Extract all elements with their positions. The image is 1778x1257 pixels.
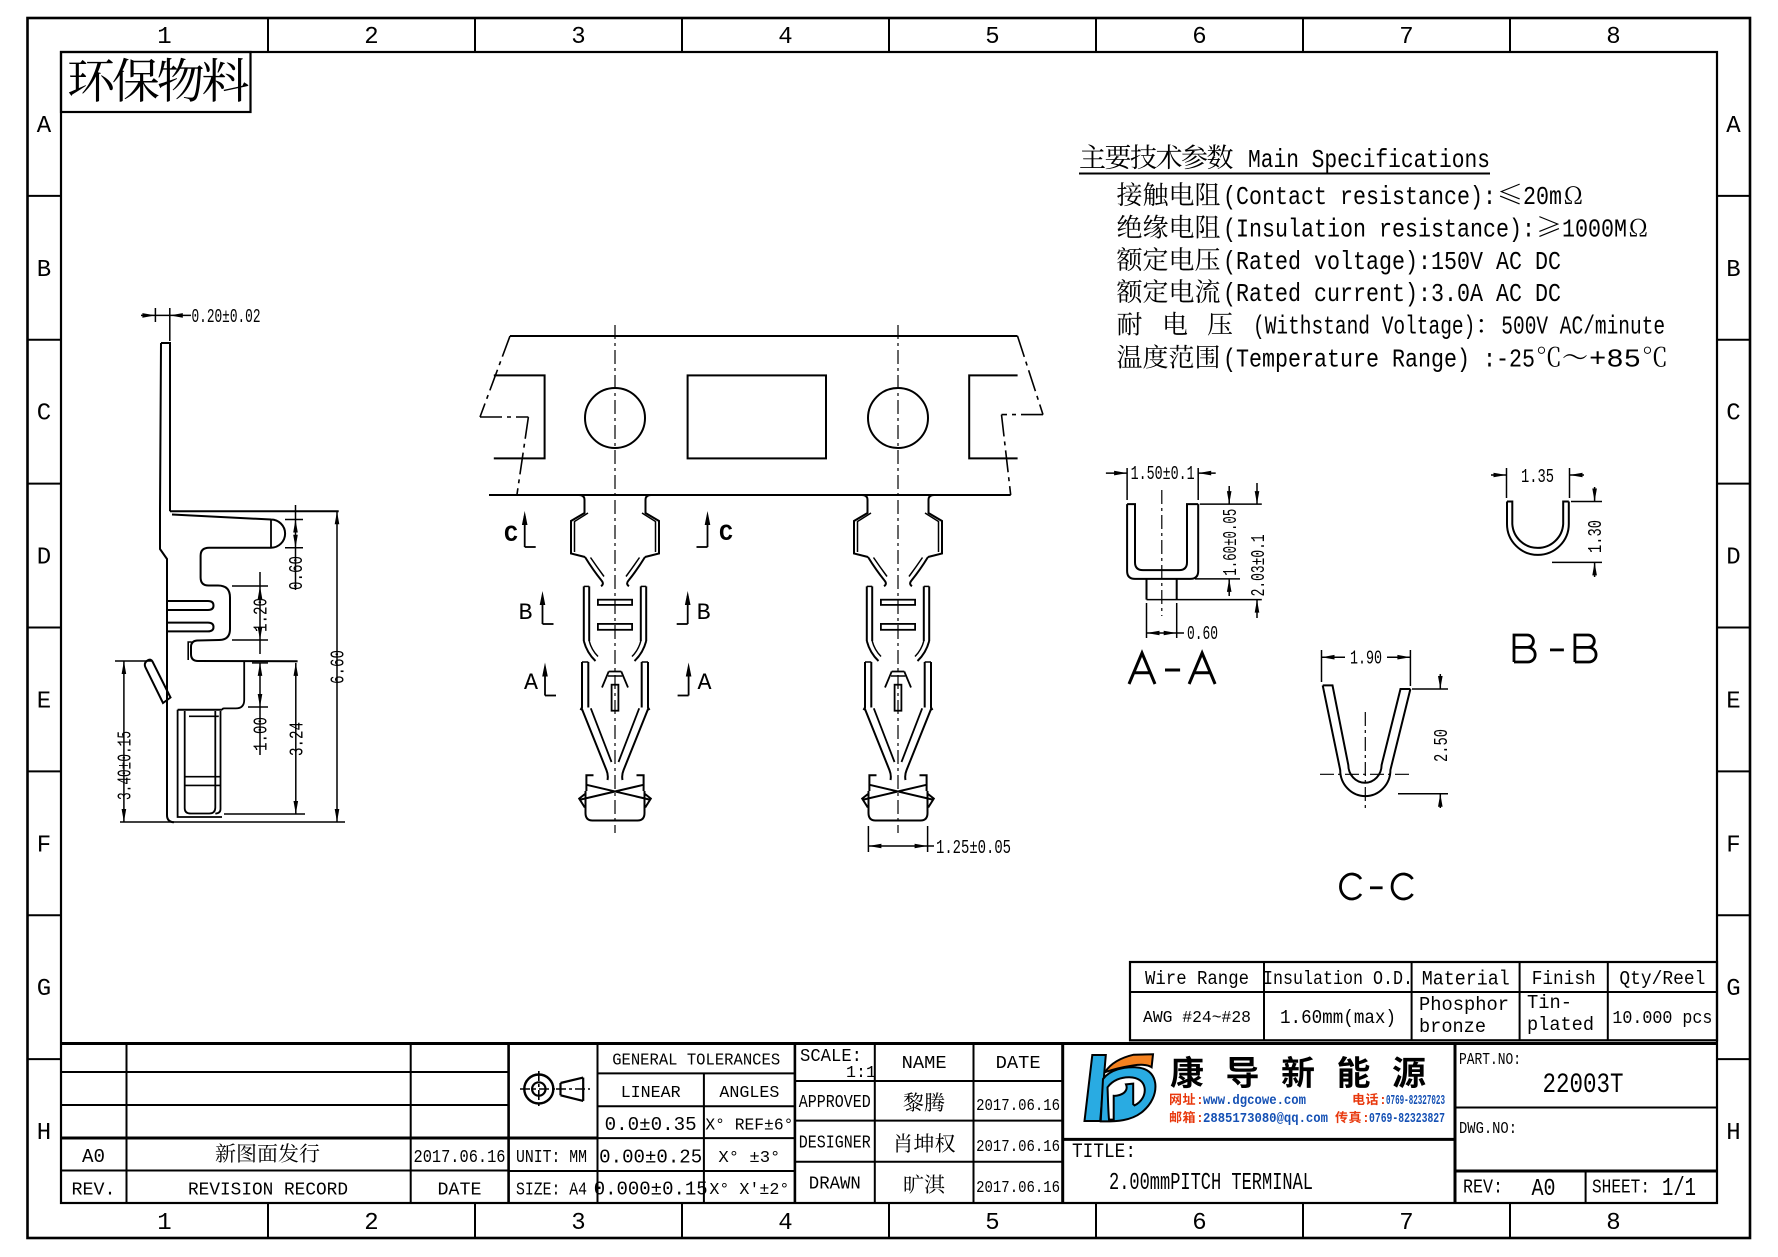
svg-text:1.50±0.1: 1.50±0.1 bbox=[1131, 463, 1195, 485]
svg-text:X° X'±2°: X° X'±2° bbox=[709, 1181, 789, 1200]
svg-text:D: D bbox=[37, 545, 51, 572]
svg-text:B: B bbox=[37, 257, 51, 284]
svg-text:0.0±0.35: 0.0±0.35 bbox=[605, 1114, 697, 1136]
svg-text:500V AC/minute: 500V AC/minute bbox=[1501, 312, 1665, 342]
svg-text:1.30: 1.30 bbox=[1585, 520, 1607, 553]
svg-text:Finish: Finish bbox=[1532, 968, 1596, 990]
svg-text:2017.06.16: 2017.06.16 bbox=[976, 1097, 1060, 1116]
svg-text:Main Specifications: Main Specifications bbox=[1248, 145, 1490, 175]
svg-text:6: 6 bbox=[1192, 24, 1206, 51]
svg-text:7: 7 bbox=[1399, 1210, 1413, 1237]
svg-text:A0: A0 bbox=[1532, 1176, 1556, 1203]
svg-text:NAME: NAME bbox=[902, 1054, 947, 1074]
svg-text:E: E bbox=[37, 688, 51, 715]
svg-text:1.20: 1.20 bbox=[251, 598, 273, 632]
svg-text:A: A bbox=[698, 670, 712, 696]
svg-text:2017.06.16: 2017.06.16 bbox=[976, 1179, 1060, 1198]
svg-text:(Rated current):3.0A AC DC: (Rated current):3.0A AC DC bbox=[1223, 279, 1561, 309]
svg-text:(Contact resistance):: (Contact resistance): bbox=[1223, 182, 1496, 212]
svg-text:H: H bbox=[1726, 1120, 1740, 1147]
svg-text:DWG.NO:: DWG.NO: bbox=[1459, 1120, 1517, 1139]
svg-text:0769-82327023: 0769-82327023 bbox=[1386, 1094, 1445, 1109]
svg-text:2885173080@qq.com: 2885173080@qq.com bbox=[1203, 1112, 1328, 1127]
svg-text:E: E bbox=[1726, 688, 1740, 715]
svg-text:3: 3 bbox=[571, 1210, 585, 1237]
svg-text:8: 8 bbox=[1606, 24, 1620, 51]
svg-text:REV:: REV: bbox=[1463, 1177, 1503, 1199]
svg-text:1: 1 bbox=[157, 1210, 171, 1237]
svg-text:1:1: 1:1 bbox=[846, 1064, 876, 1083]
svg-text:3.40±0.15: 3.40±0.15 bbox=[115, 731, 137, 800]
svg-text:1/1: 1/1 bbox=[1662, 1173, 1696, 1203]
svg-text:1: 1 bbox=[157, 24, 171, 51]
svg-text:10.000 pcs: 10.000 pcs bbox=[1612, 1009, 1712, 1029]
svg-text:H: H bbox=[37, 1120, 51, 1147]
svg-text:B: B bbox=[697, 600, 711, 626]
svg-text:0.60: 0.60 bbox=[1187, 623, 1218, 645]
svg-text:DATE: DATE bbox=[996, 1054, 1041, 1074]
svg-text:2: 2 bbox=[364, 24, 378, 51]
svg-text:G: G bbox=[1726, 976, 1740, 1003]
svg-text:REV.: REV. bbox=[72, 1181, 116, 1201]
svg-text:20m: 20m bbox=[1523, 182, 1562, 212]
svg-text:2017.06.16: 2017.06.16 bbox=[414, 1148, 506, 1168]
svg-text:(Insulation resistance):: (Insulation resistance): bbox=[1223, 215, 1535, 245]
svg-text:A: A bbox=[37, 113, 52, 140]
svg-text:X° ±3°: X° ±3° bbox=[718, 1149, 780, 1168]
svg-text:A: A bbox=[524, 670, 538, 696]
svg-text:1.90: 1.90 bbox=[1350, 648, 1382, 670]
svg-text:3.24: 3.24 bbox=[287, 722, 309, 756]
svg-text:Qty/Reel: Qty/Reel bbox=[1619, 968, 1705, 990]
svg-text:5: 5 bbox=[985, 24, 999, 51]
svg-text:LINEAR: LINEAR bbox=[621, 1084, 681, 1103]
svg-text:8: 8 bbox=[1606, 1210, 1620, 1237]
svg-text:7: 7 bbox=[1399, 24, 1413, 51]
svg-text:A: A bbox=[1726, 113, 1741, 140]
svg-text:1.25±0.05: 1.25±0.05 bbox=[936, 837, 1011, 859]
svg-text:0769-82323827: 0769-82323827 bbox=[1369, 1112, 1445, 1127]
svg-text:+85: +85 bbox=[1589, 345, 1641, 375]
svg-text:APPROVED: APPROVED bbox=[799, 1093, 871, 1113]
svg-text:C: C bbox=[719, 521, 733, 547]
svg-text:DATE: DATE bbox=[438, 1181, 482, 1201]
svg-text:plated: plated bbox=[1527, 1014, 1594, 1036]
svg-text:C: C bbox=[504, 522, 518, 548]
svg-text:A0: A0 bbox=[82, 1146, 105, 1168]
svg-text:5: 5 bbox=[985, 1210, 999, 1237]
svg-text:G: G bbox=[37, 976, 51, 1003]
svg-text:PART.NO:: PART.NO: bbox=[1459, 1051, 1521, 1070]
svg-text:1.60mm(max): 1.60mm(max) bbox=[1280, 1007, 1396, 1029]
svg-text:6: 6 bbox=[1192, 1210, 1206, 1237]
svg-text:1000M: 1000M bbox=[1562, 215, 1627, 245]
svg-text:2: 2 bbox=[364, 1210, 378, 1237]
svg-text:B: B bbox=[1726, 257, 1740, 284]
svg-text:1.60±0.05: 1.60±0.05 bbox=[1220, 509, 1242, 576]
svg-text:D: D bbox=[1726, 545, 1740, 572]
svg-text:C: C bbox=[1726, 401, 1740, 428]
svg-text:Material: Material bbox=[1422, 969, 1510, 992]
svg-text:2.50: 2.50 bbox=[1431, 729, 1453, 762]
svg-text:22003T: 22003T bbox=[1543, 1070, 1624, 1101]
svg-text:(Temperature Range) :-25: (Temperature Range) :-25 bbox=[1223, 345, 1535, 375]
svg-text:1.35: 1.35 bbox=[1521, 466, 1554, 488]
svg-text:4: 4 bbox=[778, 1210, 792, 1237]
svg-text:ANGLES: ANGLES bbox=[719, 1084, 779, 1103]
svg-text:1.00: 1.00 bbox=[251, 717, 273, 751]
svg-text:6.60: 6.60 bbox=[328, 650, 350, 684]
svg-text:Phosphor: Phosphor bbox=[1419, 994, 1509, 1016]
svg-text:4: 4 bbox=[778, 24, 792, 51]
svg-text:Wire Range: Wire Range bbox=[1145, 968, 1249, 990]
svg-text:(Withstand Voltage): (Withstand Voltage) bbox=[1253, 312, 1475, 342]
svg-text:AWG #24~#28: AWG #24~#28 bbox=[1143, 1009, 1251, 1028]
svg-text:DRAWN: DRAWN bbox=[809, 1175, 861, 1195]
svg-text:GENERAL TOLERANCES: GENERAL TOLERANCES bbox=[612, 1052, 780, 1071]
svg-text:0.00±0.25: 0.00±0.25 bbox=[599, 1147, 702, 1169]
svg-text:0.60: 0.60 bbox=[286, 556, 308, 590]
svg-text:bronze: bronze bbox=[1419, 1016, 1486, 1038]
svg-text:3: 3 bbox=[571, 24, 585, 51]
svg-text:SIZE: A4: SIZE: A4 bbox=[516, 1181, 587, 1201]
svg-text:B: B bbox=[519, 600, 533, 626]
svg-text:F: F bbox=[37, 832, 51, 859]
svg-text:TITLE:: TITLE: bbox=[1072, 1141, 1136, 1164]
svg-text:2017.06.16: 2017.06.16 bbox=[976, 1138, 1060, 1157]
svg-text:Insulation O.D.: Insulation O.D. bbox=[1263, 968, 1413, 990]
svg-text:0.20±0.02: 0.20±0.02 bbox=[192, 306, 261, 328]
svg-text:(Rated voltage):150V AC DC: (Rated voltage):150V AC DC bbox=[1223, 247, 1561, 277]
svg-text:F: F bbox=[1726, 832, 1740, 859]
svg-text:www.dgcowe.com: www.dgcowe.com bbox=[1203, 1094, 1306, 1109]
svg-text:UNIT: MM: UNIT: MM bbox=[516, 1148, 587, 1168]
svg-text:C: C bbox=[37, 401, 51, 428]
svg-text:Tin-: Tin- bbox=[1527, 992, 1572, 1014]
svg-text:2.03±0.1: 2.03±0.1 bbox=[1248, 534, 1270, 596]
svg-text:REVISION RECORD: REVISION RECORD bbox=[188, 1181, 348, 1201]
svg-text:0.000±0.15: 0.000±0.15 bbox=[594, 1179, 708, 1201]
svg-text:SHEET:: SHEET: bbox=[1592, 1177, 1650, 1199]
svg-text:X° REF±6°: X° REF±6° bbox=[705, 1117, 793, 1136]
svg-text:2.00mmPITCH TERMINAL: 2.00mmPITCH TERMINAL bbox=[1109, 1170, 1313, 1197]
svg-text:DESIGNER: DESIGNER bbox=[799, 1134, 871, 1154]
